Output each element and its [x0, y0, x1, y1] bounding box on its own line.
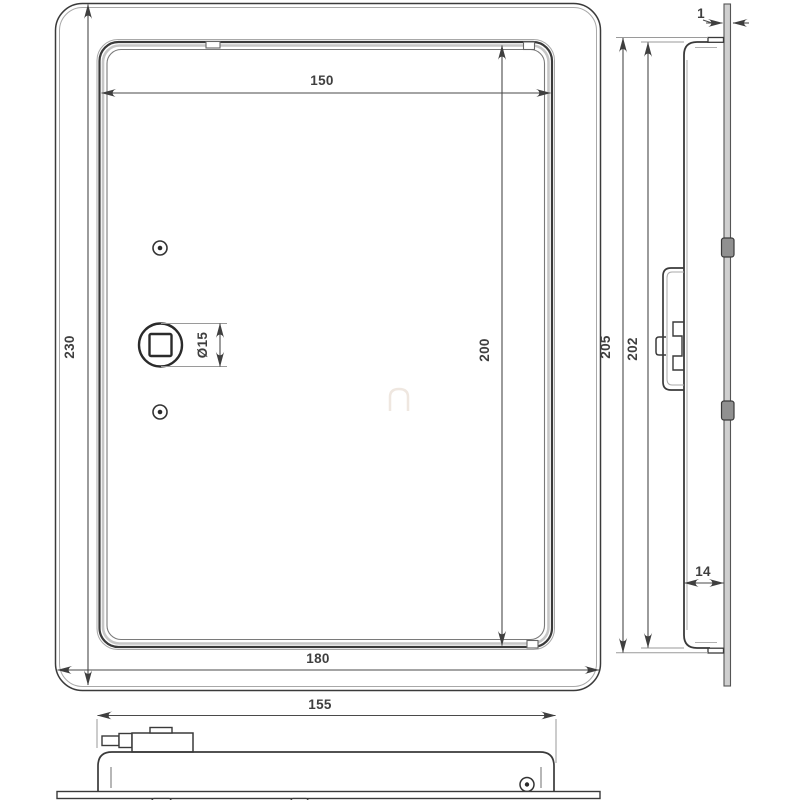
dim-side-panel-height-label: 202: [625, 337, 640, 360]
dim-lock-diameter-label: Ø15: [195, 332, 210, 359]
flange-plate: [724, 4, 731, 686]
dim-door-height: 200: [477, 46, 502, 646]
faint-handle-mark: [390, 389, 408, 411]
dim-door-height-label: 200: [477, 338, 492, 361]
door-pan-profile: [684, 38, 724, 654]
dim-door-width-label: 150: [310, 73, 333, 88]
pan-tab-bottom: [708, 648, 724, 653]
door-tab-bottom-right: [527, 641, 538, 649]
latch-pin: [102, 736, 119, 746]
technical-drawing-page: Ø15 150 230 200 180: [0, 0, 800, 800]
front-view: Ø15 150 230 200 180: [56, 4, 601, 691]
latch-cap: [150, 728, 172, 734]
dim-frame-height: 230: [62, 5, 88, 686]
drawing-canvas: Ø15 150 230 200 180: [0, 0, 800, 800]
dim-side-outer-height: 205: [598, 38, 708, 653]
flange-plate-bottom-view: [57, 792, 600, 799]
side-view: 1 205 202 14: [598, 4, 749, 686]
dim-side-outer-height-label: 205: [598, 335, 613, 359]
square-lock: [139, 324, 182, 367]
bottom-view: 155: [57, 697, 600, 800]
dim-flange-thickness: 1: [697, 6, 749, 23]
dim-bottom-panel-width-label: 155: [308, 697, 332, 712]
latch-housing: [132, 733, 193, 752]
latch-nub: [656, 337, 666, 355]
door-pan-bottom: [98, 752, 554, 792]
spring-clip-bottom: [722, 401, 735, 420]
dim-flange-thickness-label: 1: [697, 6, 705, 21]
dim-frame-height-label: 230: [62, 335, 77, 358]
dim-door-width: 150: [102, 73, 551, 93]
dim-side-panel-height: 202: [625, 42, 684, 648]
dim-panel-depth-label: 14: [695, 564, 711, 579]
rivet-bottom: [153, 405, 167, 419]
pan-tab-top: [708, 38, 724, 43]
latch-step-detail: [673, 322, 684, 370]
rivet-top: [153, 241, 167, 255]
door-tab-top-left: [206, 42, 220, 49]
dim-panel-depth: 14: [685, 564, 724, 583]
spring-clip-top: [722, 238, 735, 257]
latch-bracket-side: [656, 268, 684, 390]
latch-pin-joint: [119, 734, 132, 748]
dim-frame-width: 180: [58, 651, 600, 670]
frame-outer-edge: [56, 4, 601, 691]
lock-circle: [139, 324, 182, 367]
door-tab-top-right: [524, 42, 535, 50]
rivet-bottom-view: [520, 778, 534, 792]
latch-mechanism-bottom: [102, 728, 193, 753]
dim-frame-width-label: 180: [306, 651, 329, 666]
